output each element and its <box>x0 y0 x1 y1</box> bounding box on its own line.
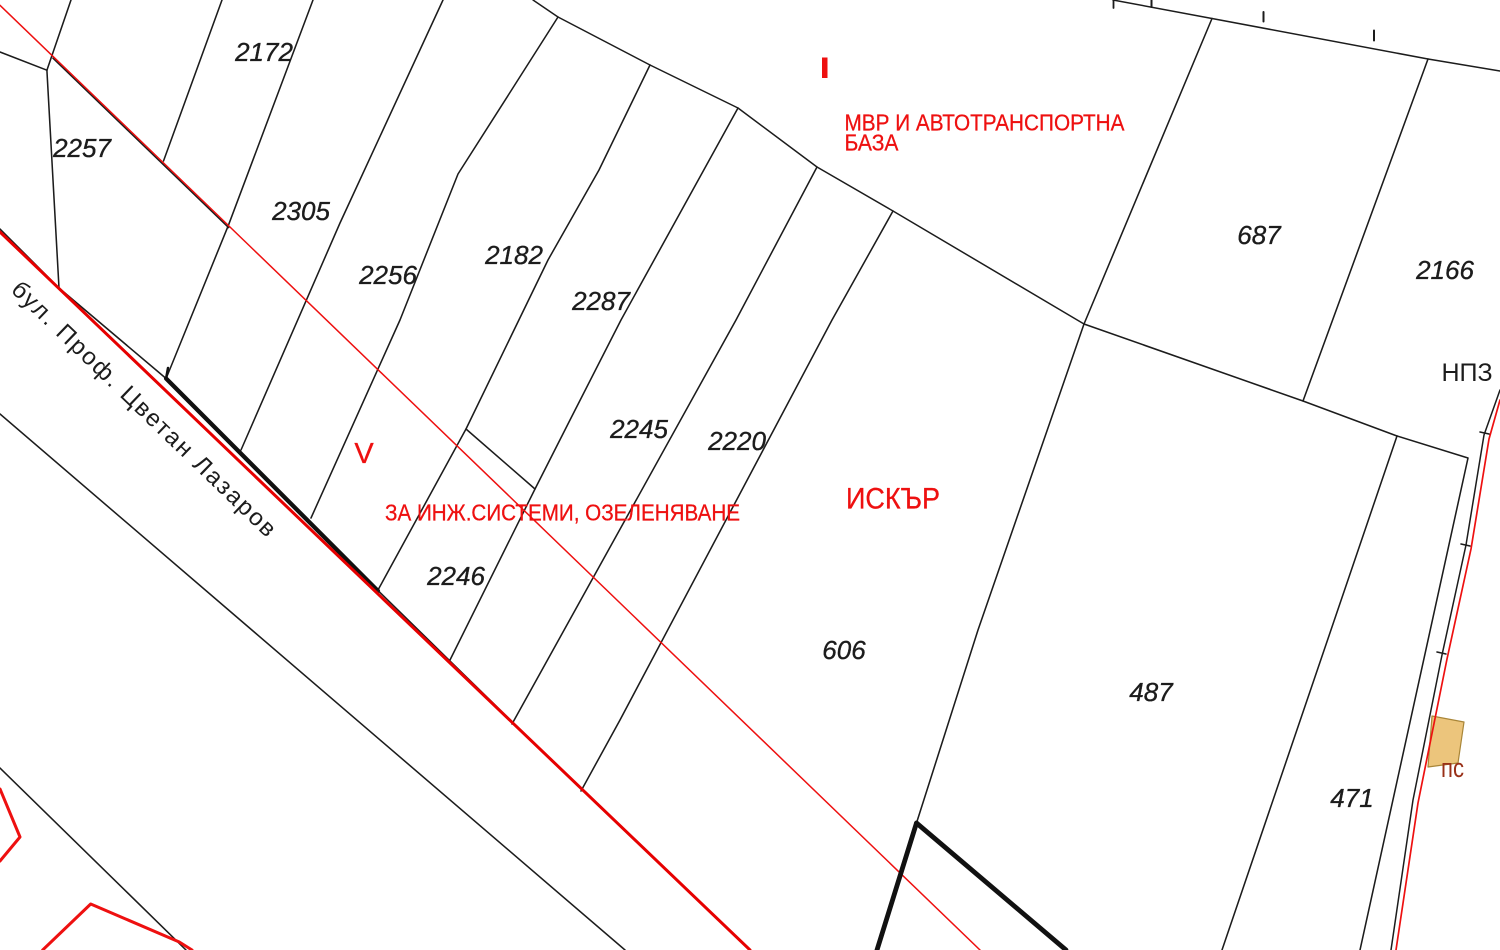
svg-text:2245: 2245 <box>609 414 668 444</box>
svg-text:2257: 2257 <box>52 133 112 163</box>
svg-text:пс: пс <box>1441 753 1464 783</box>
svg-text:2172: 2172 <box>234 37 293 67</box>
svg-text:606: 606 <box>822 635 866 665</box>
svg-text:ЗА ИНЖ.СИСТЕМИ, ОЗЕЛЕНЯВАНЕ: ЗА ИНЖ.СИСТЕМИ, ОЗЕЛЕНЯВАНЕ <box>385 500 740 526</box>
svg-text:2166: 2166 <box>1415 255 1474 285</box>
svg-text:2256: 2256 <box>358 260 417 290</box>
svg-text:2246: 2246 <box>426 561 485 591</box>
svg-text:2305: 2305 <box>271 196 330 226</box>
svg-text:487: 487 <box>1129 677 1174 707</box>
svg-text:471: 471 <box>1330 783 1373 813</box>
svg-text:бул. Проф. Цветан Лазаров: бул. Проф. Цветан Лазаров <box>6 276 283 544</box>
svg-text:687: 687 <box>1237 220 1282 250</box>
svg-text:2220: 2220 <box>707 426 766 456</box>
svg-text:ИСКЪР: ИСКЪР <box>846 483 940 516</box>
svg-text:БАЗА: БАЗА <box>845 130 899 156</box>
svg-text:2287: 2287 <box>571 286 631 316</box>
svg-text:2182: 2182 <box>484 240 543 270</box>
svg-text:НПЗ: НПЗ <box>1441 359 1492 387</box>
svg-text:V: V <box>354 438 374 470</box>
